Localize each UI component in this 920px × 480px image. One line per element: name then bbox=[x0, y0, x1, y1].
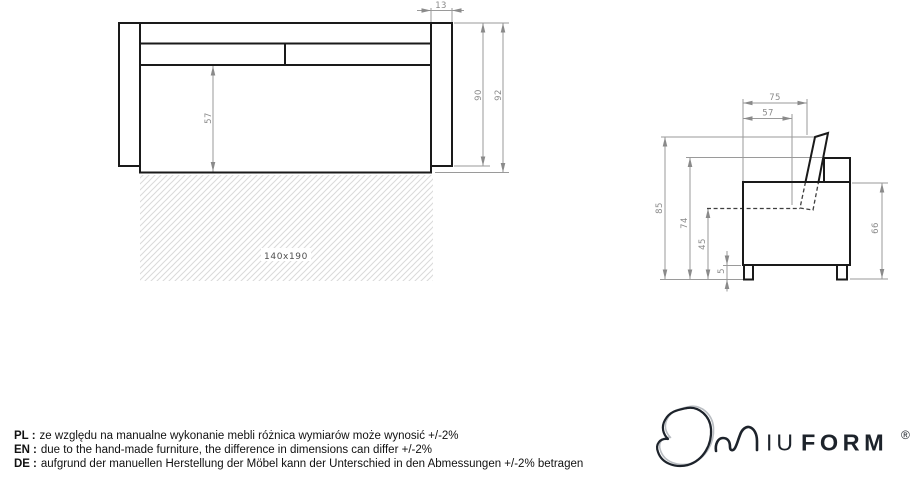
armrest-left bbox=[119, 23, 140, 166]
front-leg bbox=[744, 265, 753, 280]
dim-label-66: 66 bbox=[871, 222, 881, 234]
logo-wordmark-light: IU bbox=[766, 430, 797, 456]
note-de-label: DE bbox=[14, 458, 30, 470]
logo-m-glyph bbox=[716, 427, 757, 451]
rear-leg bbox=[837, 265, 847, 280]
dim-depths-top: 75 57 bbox=[743, 93, 807, 205]
note-de-text: aufgrund der manuellen Herstellung der M… bbox=[41, 458, 583, 470]
dim-label-92: 92 bbox=[494, 89, 504, 101]
registered-trademark-icon: ® bbox=[901, 428, 910, 442]
logo-bean-icon bbox=[657, 406, 713, 466]
dim-label-74: 74 bbox=[680, 217, 690, 229]
armrest-right bbox=[431, 23, 452, 166]
note-en-label: EN bbox=[14, 444, 30, 456]
dim-label-57-side: 57 bbox=[762, 109, 774, 119]
note-de: DE:aufgrund der manuellen Herstellung de… bbox=[14, 457, 583, 471]
mattress-size-label: 140x190 bbox=[264, 252, 308, 262]
dim-label-85: 85 bbox=[655, 202, 665, 214]
dim-armrest-width: 13 bbox=[417, 1, 464, 22]
side-view: 75 57 85 74 45 5 bbox=[655, 93, 888, 292]
front-view: 140x190 13 90 92 bbox=[119, 1, 509, 281]
dim-label-57-front: 57 bbox=[204, 112, 214, 124]
dim-label-45: 45 bbox=[698, 238, 708, 250]
dim-label-13: 13 bbox=[435, 1, 447, 11]
dim-seat-front-height: 57 bbox=[204, 66, 214, 172]
note-de-separator: : bbox=[33, 458, 37, 470]
dim-label-75: 75 bbox=[769, 93, 781, 103]
dim-label-5: 5 bbox=[717, 268, 727, 274]
technical-drawing-sheet: 140x190 13 90 92 bbox=[0, 0, 920, 480]
note-en-text: due to the hand-made furniture, the diff… bbox=[41, 444, 432, 456]
sofa-body-side bbox=[743, 133, 850, 280]
mattress-area bbox=[140, 175, 433, 281]
cushion-hidden-part bbox=[800, 182, 819, 210]
note-pl-separator: : bbox=[32, 430, 36, 442]
dim-height-right: 66 bbox=[850, 183, 888, 279]
note-pl: PL:ze względu na manualne wykonanie mebl… bbox=[14, 429, 583, 443]
note-pl-label: PL bbox=[14, 430, 29, 442]
note-pl-text: ze względu na manualne wykonanie mebli r… bbox=[40, 430, 459, 442]
tolerance-notes: PL:ze względu na manualne wykonanie mebl… bbox=[14, 429, 583, 472]
note-en-separator: : bbox=[33, 444, 37, 456]
note-en: EN:due to the hand-made furniture, the d… bbox=[14, 443, 583, 457]
miuform-logo: IU FORM ® bbox=[650, 400, 920, 475]
logo-wordmark-bold: FORM bbox=[801, 430, 888, 456]
dim-label-90: 90 bbox=[474, 89, 484, 101]
dim-heights-right: 90 92 bbox=[435, 23, 509, 173]
sofa-drawing: 140x190 13 90 92 bbox=[0, 0, 920, 400]
dim-heights-left: 85 74 45 5 bbox=[655, 137, 822, 292]
